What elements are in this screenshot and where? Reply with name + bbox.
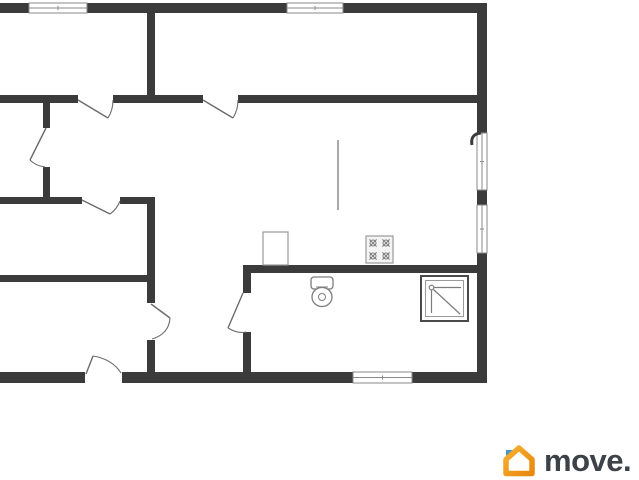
door-swing-arc <box>93 356 121 373</box>
door-leaf <box>82 200 110 214</box>
wall-segment <box>0 275 147 282</box>
wall-segment <box>0 372 85 383</box>
door-leaf <box>203 100 233 118</box>
wall-segment <box>147 13 155 95</box>
wall-segment <box>87 3 287 13</box>
wall-segment <box>122 372 353 383</box>
wall-segment <box>243 273 251 293</box>
wall-segment <box>147 282 155 303</box>
wall-segment <box>147 197 155 282</box>
floor-plan-svg <box>0 0 639 480</box>
door-leaf <box>78 100 108 118</box>
wall-segment <box>477 190 487 205</box>
wall-segment <box>0 197 82 204</box>
wall-segment <box>0 95 78 103</box>
door-leaf <box>228 293 243 328</box>
wall-segment <box>0 3 29 13</box>
door-swing-arc <box>30 160 45 167</box>
door-leaf <box>151 304 170 318</box>
floor-plan-image: move. <box>0 0 639 480</box>
wall-segment <box>147 340 155 372</box>
wall-segment <box>43 167 50 197</box>
brand-text: move. <box>544 443 631 479</box>
door-swing-arc <box>233 100 238 118</box>
door-leaf <box>86 356 93 374</box>
cabinet-symbol <box>263 232 288 265</box>
wall-segment <box>343 3 487 13</box>
wall-segment <box>113 95 203 103</box>
wall-segment <box>43 103 50 128</box>
door-swing-arc <box>152 318 170 339</box>
wall-segment <box>243 265 477 273</box>
toilet-bowl <box>312 288 332 307</box>
wall-segment <box>243 332 251 372</box>
house-icon <box>503 444 535 478</box>
door-leaf <box>30 128 46 160</box>
door-swing-arc <box>110 201 120 214</box>
watermark-logo: move. <box>503 443 631 479</box>
shower-symbol <box>421 276 468 321</box>
door-swing-arc <box>228 328 246 333</box>
wall-segment <box>412 372 487 383</box>
door-swing-arc <box>108 100 113 118</box>
wall-segment <box>477 13 487 133</box>
wall-segment <box>238 95 477 103</box>
wall-segment <box>477 253 487 383</box>
